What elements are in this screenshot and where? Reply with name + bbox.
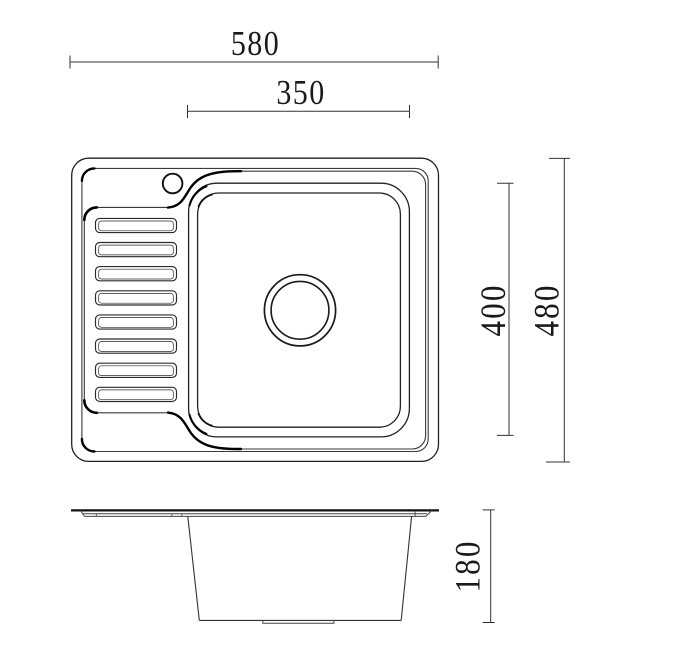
svg-text:180: 180 — [448, 539, 488, 592]
svg-text:580: 580 — [231, 25, 280, 64]
svg-text:350: 350 — [276, 74, 325, 113]
svg-text:400: 400 — [474, 283, 514, 336]
svg-text:480: 480 — [527, 283, 567, 336]
